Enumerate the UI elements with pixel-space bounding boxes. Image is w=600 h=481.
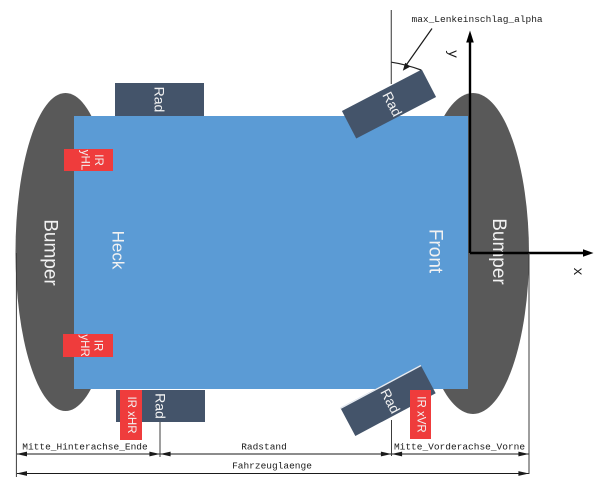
svg-text:Radstand: Radstand xyxy=(241,442,287,453)
svg-text:yHL: yHL xyxy=(79,150,91,171)
svg-text:Mitte_Vorderachse_Vorne: Mitte_Vorderachse_Vorne xyxy=(394,442,525,453)
svg-text:Front: Front xyxy=(425,229,446,274)
svg-text:IR: IR xyxy=(92,340,104,352)
svg-text:max_Lenkeinschlag_alpha: max_Lenkeinschlag_alpha xyxy=(412,14,543,25)
svg-text:IR: IR xyxy=(92,154,104,166)
svg-text:IR xVR: IR xVR xyxy=(415,396,427,432)
svg-text:y: y xyxy=(444,50,460,58)
svg-text:x: x xyxy=(569,267,585,275)
svg-text:Mitte_Hinterachse_Ende: Mitte_Hinterachse_Ende xyxy=(22,442,148,453)
svg-text:Fahrzeuglaenge: Fahrzeuglaenge xyxy=(232,461,312,472)
svg-text:Rad: Rad xyxy=(153,393,169,419)
svg-text:Bumper: Bumper xyxy=(40,219,61,286)
svg-text:Rad: Rad xyxy=(152,87,168,113)
svg-text:Heck: Heck xyxy=(109,231,128,270)
svg-text:yHR: yHR xyxy=(78,334,90,356)
svg-text:IR xHR: IR xHR xyxy=(125,396,137,433)
